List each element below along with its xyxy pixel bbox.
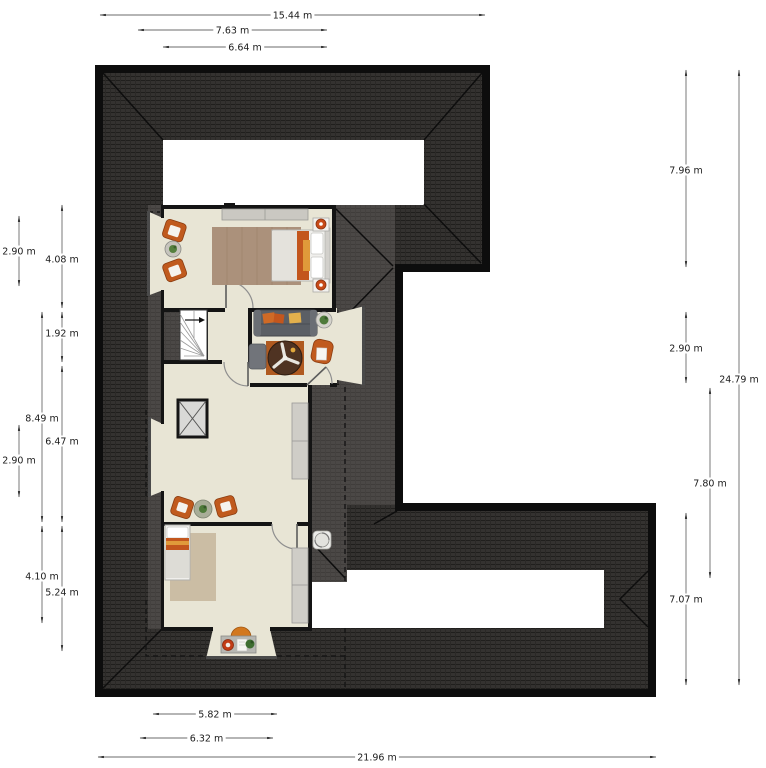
wall <box>308 385 312 524</box>
wall <box>270 627 312 631</box>
pillow <box>289 312 302 323</box>
pillow <box>273 313 284 323</box>
wall <box>161 491 164 629</box>
window-dormer-hall-left <box>148 417 151 497</box>
dimension-label: 7.96 m <box>669 165 702 176</box>
nightstand-lamp <box>313 279 329 292</box>
wall <box>308 522 312 631</box>
dormer-sitting-right <box>337 306 365 385</box>
side-table-plant <box>316 312 332 328</box>
wall <box>161 205 336 209</box>
dimension-label: 5.24 m <box>45 587 78 598</box>
single-bed <box>165 525 190 580</box>
wall <box>161 290 164 424</box>
window-dormer-desk <box>206 656 277 659</box>
wall <box>161 627 213 631</box>
shadow-right-top <box>334 205 395 310</box>
ceiling-fan-icon <box>313 531 331 549</box>
roof-opening-top <box>163 140 424 205</box>
dimension-label: 4.08 m <box>45 254 78 265</box>
dimension-label: 2.90 m <box>669 343 702 354</box>
dimension-label: 8.49 m <box>25 413 58 424</box>
wall <box>250 383 307 387</box>
window-dormer-top-left <box>147 211 150 296</box>
wall <box>161 360 222 364</box>
dimension-label: 7.63 m <box>216 25 249 36</box>
wall <box>332 205 336 312</box>
double-bed <box>272 228 330 283</box>
winder-stairs <box>180 310 207 360</box>
nightstand-lamp <box>313 218 329 231</box>
dimension-label: 15.44 m <box>273 10 312 21</box>
void-shaft <box>178 400 207 437</box>
headboard <box>325 228 330 283</box>
side-table-plant <box>194 500 212 518</box>
dimension-label: 7.07 m <box>669 594 702 605</box>
dimension-label: 6.32 m <box>190 733 223 744</box>
dimension-label: 1.92 m <box>45 328 78 339</box>
desk-chair <box>249 344 266 369</box>
shadow-stairs-left <box>163 308 180 362</box>
dimension-label: 6.47 m <box>45 436 78 447</box>
plant <box>246 640 255 649</box>
sofa <box>254 310 317 336</box>
pillow <box>167 527 188 538</box>
window-dormer-sitting <box>362 306 365 385</box>
round-table-fan <box>266 341 304 375</box>
wardrobe <box>292 548 308 623</box>
dimension-label: 6.64 m <box>228 42 261 53</box>
side-table-plant <box>165 241 181 257</box>
dimension-label: 4.10 m <box>25 571 58 582</box>
dimension-label: 2.90 m <box>2 246 35 257</box>
floor-plan-page: 15.44 m7.63 m6.64 m5.82 m6.32 m21.96 m2.… <box>0 0 766 768</box>
pillow <box>311 257 323 278</box>
dimension-label: 21.96 m <box>357 752 396 763</box>
dimension-label: 24.79 m <box>719 374 758 385</box>
dimension-label: 5.82 m <box>198 709 231 720</box>
dimension-label: 2.90 m <box>2 455 35 466</box>
wall <box>161 205 164 218</box>
roof-opening-bottom <box>310 570 604 628</box>
pillow <box>311 233 323 254</box>
floor-plan: 15.44 m7.63 m6.64 m5.82 m6.32 m21.96 m2.… <box>0 0 766 768</box>
wall <box>330 383 337 387</box>
dimension-label: 7.80 m <box>693 478 726 489</box>
